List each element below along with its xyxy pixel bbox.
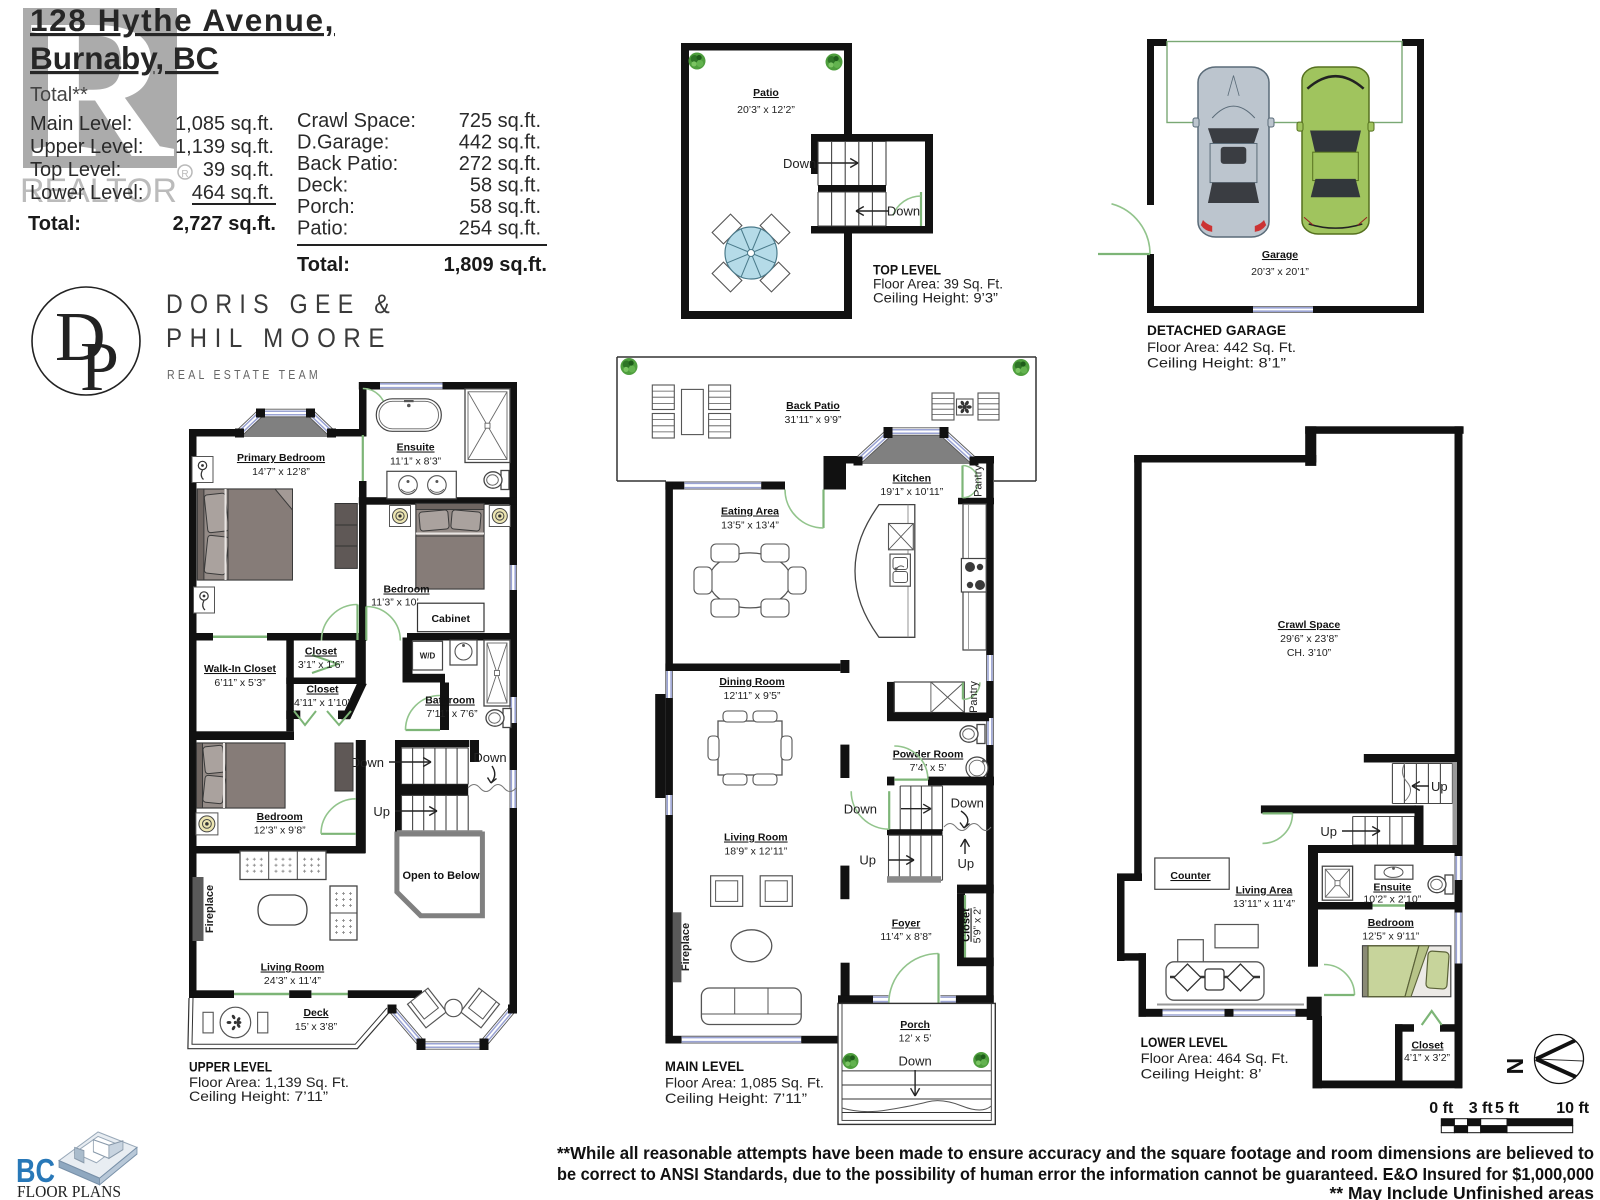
- svg-text:Down: Down: [844, 802, 877, 817]
- svg-text:Dining Room: Dining Room: [719, 676, 784, 688]
- svg-text:Living Area: Living Area: [1236, 885, 1293, 897]
- svg-text:Porch:: Porch:: [297, 196, 355, 218]
- svg-text:6’11” x 5’3”: 6’11” x 5’3”: [214, 677, 266, 689]
- svg-text:N: N: [1502, 1058, 1528, 1075]
- svg-text:12’ x 5’: 12’ x 5’: [899, 1033, 932, 1045]
- svg-text:Upper Level:: Upper Level:: [30, 136, 143, 158]
- svg-text:254 sq.ft.: 254 sq.ft.: [459, 218, 541, 240]
- svg-text:19’1” x 10’11”: 19’1” x 10’11”: [880, 486, 943, 498]
- svg-text:20’3” x 12’2”: 20’3” x 12’2”: [737, 104, 795, 116]
- svg-text:**While all reasonable attempt: **While all reasonable attempts have bee…: [557, 1143, 1594, 1163]
- svg-text:Bedroom: Bedroom: [257, 811, 303, 823]
- svg-text:10’2” x 2’10”: 10’2” x 2’10”: [1363, 894, 1421, 906]
- svg-text:Down: Down: [473, 750, 506, 765]
- svg-text:Deck: Deck: [303, 1007, 328, 1019]
- svg-text:Kitchen: Kitchen: [893, 473, 932, 485]
- svg-text:REAL ESTATE TEAM: REAL ESTATE TEAM: [167, 367, 321, 382]
- svg-text:Fireplace: Fireplace: [680, 923, 692, 971]
- svg-text:24’3” x 11’4”: 24’3” x 11’4”: [264, 975, 322, 987]
- svg-text:Bathroom: Bathroom: [425, 695, 475, 707]
- svg-text:Ensuite: Ensuite: [397, 442, 435, 454]
- svg-text:Bedroom: Bedroom: [383, 584, 429, 596]
- svg-text:Foyer: Foyer: [892, 918, 921, 930]
- svg-text:Floor Area: 1,085 Sq. Ft.: Floor Area: 1,085 Sq. Ft.: [665, 1075, 824, 1091]
- svg-text:Ceiling Height: 8’1”: Ceiling Height: 8’1”: [1147, 355, 1286, 371]
- svg-text:29’6” x 23’8”: 29’6” x 23’8”: [1280, 633, 1338, 645]
- svg-text:LOWER LEVEL: LOWER LEVEL: [1141, 1034, 1228, 1050]
- svg-text:0 ft: 0 ft: [1429, 1100, 1454, 1117]
- svg-text:Ceiling Height: 7’11”: Ceiling Height: 7’11”: [189, 1088, 328, 1104]
- svg-text:Up: Up: [373, 804, 390, 819]
- svg-text:Up: Up: [1320, 824, 1337, 839]
- svg-text:Top Level:: Top Level:: [30, 159, 121, 181]
- svg-text:D.Garage:: D.Garage:: [297, 132, 389, 154]
- svg-text:Open to Below: Open to Below: [403, 870, 480, 882]
- svg-text:Up: Up: [1431, 779, 1448, 794]
- svg-text:10 ft: 10 ft: [1556, 1100, 1590, 1117]
- svg-text:20’3” x 20’1”: 20’3” x 20’1”: [1251, 266, 1309, 278]
- svg-text:Bedroom: Bedroom: [1368, 917, 1414, 929]
- svg-text:Total:: Total:: [28, 213, 81, 235]
- svg-text:Back Patio: Back Patio: [786, 400, 840, 412]
- svg-text:725 sq.ft.: 725 sq.ft.: [459, 110, 541, 132]
- svg-text:3’1” x 1’6”: 3’1” x 1’6”: [298, 659, 345, 671]
- svg-text:1,085 sq.ft.: 1,085 sq.ft.: [175, 113, 274, 135]
- svg-text:1,139 sq.ft.: 1,139 sq.ft.: [175, 136, 274, 158]
- svg-text:Total**: Total**: [30, 84, 88, 106]
- svg-text:5’9” x 2’: 5’9” x 2’: [972, 907, 984, 944]
- svg-text:Powder Room: Powder Room: [893, 749, 964, 761]
- svg-text:CH. 3’10”: CH. 3’10”: [1287, 647, 1332, 659]
- svg-text:R: R: [181, 169, 188, 180]
- svg-text:Back Patio:: Back Patio:: [297, 153, 398, 175]
- svg-text:13’5” x 13’4”: 13’5” x 13’4”: [721, 520, 779, 532]
- svg-text:Up: Up: [859, 853, 876, 868]
- svg-text:2,727 sq.ft.: 2,727 sq.ft.: [173, 213, 276, 235]
- svg-text:11’1” x 8’3”: 11’1” x 8’3”: [390, 456, 442, 468]
- svg-text:PHIL MOORE: PHIL MOORE: [166, 323, 392, 353]
- svg-text:Living Room: Living Room: [261, 962, 325, 974]
- svg-text:Floor Area: 442 Sq. Ft.: Floor Area: 442 Sq. Ft.: [1147, 339, 1296, 355]
- svg-text:Ceiling Height: 8’: Ceiling Height: 8’: [1141, 1066, 1262, 1082]
- svg-text:7’4” x 5’: 7’4” x 5’: [910, 762, 947, 774]
- svg-text:464 sq.ft.: 464 sq.ft.: [192, 182, 274, 204]
- svg-text:MAIN LEVEL: MAIN LEVEL: [665, 1058, 744, 1074]
- svg-text:Counter: Counter: [1170, 870, 1210, 882]
- svg-text:Main Level:: Main Level:: [30, 113, 132, 135]
- svg-text:Lower Level:: Lower Level:: [30, 182, 143, 204]
- svg-text:Porch: Porch: [900, 1019, 930, 1031]
- svg-text:442 sq.ft.: 442 sq.ft.: [459, 132, 541, 154]
- svg-text:Ensuite: Ensuite: [1373, 882, 1411, 894]
- svg-text:128 Hythe Avenue,: 128 Hythe Avenue,: [30, 2, 335, 38]
- svg-text:39 sq.ft.: 39 sq.ft.: [203, 159, 274, 181]
- svg-text:** May Include Unfinished area: ** May Include Unfinished areas: [1329, 1183, 1594, 1200]
- svg-text:Closet: Closet: [305, 646, 338, 658]
- svg-text:31’11” x 9’9”: 31’11” x 9’9”: [784, 414, 842, 426]
- svg-text:Fireplace: Fireplace: [204, 885, 216, 933]
- svg-text:12’5” x 9’11”: 12’5” x 9’11”: [1362, 930, 1420, 942]
- svg-text:58 sq.ft.: 58 sq.ft.: [470, 196, 541, 218]
- svg-text:DORIS GEE &: DORIS GEE &: [166, 289, 397, 319]
- svg-text:Ceiling Height: 7’11”: Ceiling Height: 7’11”: [665, 1090, 807, 1106]
- svg-text:P: P: [80, 329, 119, 406]
- svg-text:Burnaby, BC: Burnaby, BC: [30, 40, 218, 76]
- svg-text:Down: Down: [898, 1054, 931, 1069]
- svg-text:12’3” x 9’8”: 12’3” x 9’8”: [254, 825, 306, 837]
- svg-text:Patio:: Patio:: [297, 218, 348, 240]
- svg-text:FLOOR PLANS: FLOOR PLANS: [17, 1182, 121, 1200]
- svg-text:W/D: W/D: [420, 652, 436, 661]
- svg-text:Closet: Closet: [1411, 1040, 1444, 1052]
- svg-text:14’7” x 12’8”: 14’7” x 12’8”: [252, 466, 310, 478]
- svg-text:58 sq.ft.: 58 sq.ft.: [470, 175, 541, 197]
- svg-text:11’4” x 8’8”: 11’4” x 8’8”: [880, 931, 932, 943]
- svg-text:7’11” x 7’6”: 7’11” x 7’6”: [426, 708, 478, 720]
- svg-text:15’ x 3’8”: 15’ x 3’8”: [295, 1021, 338, 1033]
- svg-text:Pantry: Pantry: [973, 465, 985, 497]
- svg-text:Walk-In Closet: Walk-In Closet: [204, 663, 276, 675]
- svg-text:Down: Down: [951, 796, 984, 811]
- svg-text:272 sq.ft.: 272 sq.ft.: [459, 153, 541, 175]
- svg-text:Down: Down: [783, 156, 816, 171]
- svg-text:4’1” x 3’2”: 4’1” x 3’2”: [1404, 1052, 1451, 1064]
- svg-text:18’9” x 12’11”: 18’9” x 12’11”: [724, 846, 787, 858]
- svg-text:4’11” x 1’10”: 4’11” x 1’10”: [294, 697, 352, 709]
- svg-text:Down: Down: [887, 204, 920, 219]
- svg-text:Up: Up: [957, 856, 974, 871]
- svg-text:Primary Bedroom: Primary Bedroom: [237, 452, 325, 464]
- svg-text:Garage: Garage: [1262, 249, 1298, 261]
- svg-text:13’11” x 11’4”: 13’11” x 11’4”: [1233, 898, 1296, 910]
- svg-text:Floor Area: 464 Sq. Ft.: Floor Area: 464 Sq. Ft.: [1141, 1050, 1289, 1066]
- svg-text:be correct to ANSI Standards,: be correct to ANSI Standards, due to the…: [557, 1164, 1594, 1184]
- svg-text:Closet: Closet: [306, 684, 339, 696]
- svg-text:11’3” x 10’: 11’3” x 10’: [371, 597, 419, 609]
- svg-text:DETACHED GARAGE: DETACHED GARAGE: [1147, 322, 1286, 338]
- svg-text:5 ft: 5 ft: [1495, 1100, 1520, 1117]
- svg-text:12’11” x 9’5”: 12’11” x 9’5”: [723, 690, 781, 702]
- svg-text:Total:: Total:: [297, 254, 350, 276]
- svg-text:Pantry: Pantry: [968, 681, 980, 713]
- svg-text:Down: Down: [351, 755, 384, 770]
- svg-text:Ceiling Height: 9’3”: Ceiling Height: 9’3”: [873, 290, 998, 306]
- svg-text:1,809 sq.ft.: 1,809 sq.ft.: [444, 254, 547, 276]
- svg-text:3 ft: 3 ft: [1469, 1100, 1494, 1117]
- svg-text:Cabinet: Cabinet: [431, 613, 470, 625]
- svg-text:Crawl Space:: Crawl Space:: [297, 110, 416, 132]
- svg-text:Crawl Space: Crawl Space: [1278, 619, 1341, 631]
- svg-text:Eating Area: Eating Area: [721, 506, 779, 518]
- svg-text:Deck:: Deck:: [297, 175, 348, 197]
- svg-text:Patio: Patio: [753, 87, 779, 99]
- svg-text:UPPER LEVEL: UPPER LEVEL: [189, 1059, 272, 1075]
- svg-text:Living Room: Living Room: [724, 832, 788, 844]
